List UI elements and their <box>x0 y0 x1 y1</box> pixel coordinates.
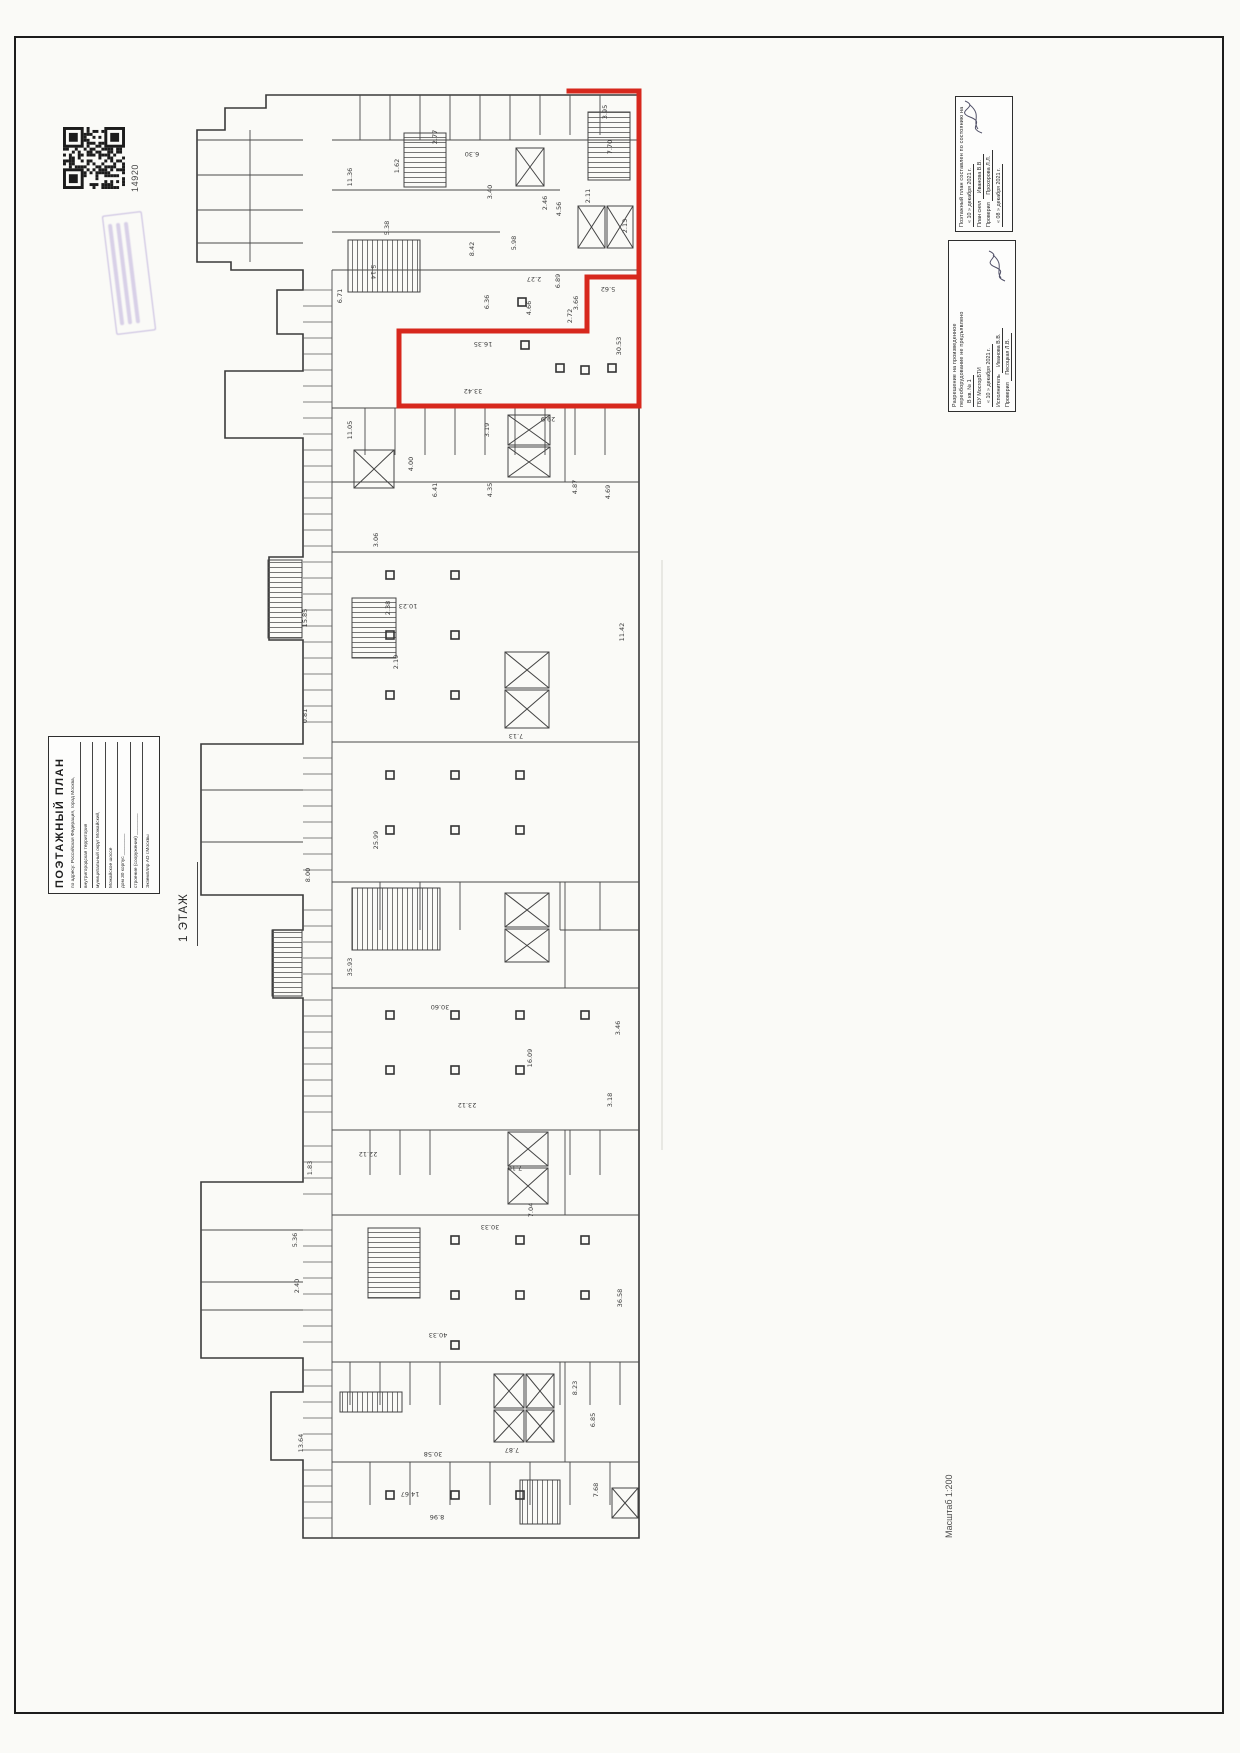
address-row: муниципальный округ Можайский, <box>93 742 106 888</box>
elevator-shaft <box>516 148 544 186</box>
copy-row: Экземпляр АО г.Москвы <box>143 742 155 888</box>
qr-module <box>93 154 96 157</box>
column <box>451 631 459 639</box>
qr-module <box>69 165 72 168</box>
dim-label: 2.19 <box>392 655 400 669</box>
elevator-shaft <box>526 1374 554 1408</box>
dim-label: 7.10 <box>508 1164 522 1172</box>
qr-module <box>116 148 119 151</box>
dim-label: 2.77 <box>431 130 439 144</box>
dim-label: 16.35 <box>474 340 493 348</box>
dim-label: 2.11 <box>584 189 592 203</box>
qr-module <box>87 168 90 171</box>
dim-label: 7.70 <box>606 140 614 154</box>
qr-module <box>122 183 125 186</box>
qr-module <box>104 183 107 186</box>
floor-label-wrap: 1 ЭТАЖ <box>178 862 202 946</box>
qr-module <box>66 148 69 151</box>
qr-module <box>104 171 107 174</box>
elevator-shaft <box>505 690 549 728</box>
qr-module <box>81 159 84 162</box>
checker-label: Проверил <box>986 202 992 227</box>
qr-module <box>116 186 119 189</box>
dim-label: 1.83 <box>306 1161 314 1175</box>
qr-module <box>122 177 125 180</box>
qr-module <box>87 130 90 133</box>
qr-module <box>90 183 93 186</box>
qr-module <box>113 162 116 165</box>
title-block: ПОЭТАЖНЫЙ ПЛАН по адресу: Российская Фед… <box>48 736 160 894</box>
dim-label: 35.93 <box>346 958 354 977</box>
document-title: ПОЭТАЖНЫЙ ПЛАН <box>53 742 68 888</box>
dim-label: 30.53 <box>615 337 623 356</box>
qr-module <box>90 148 93 151</box>
qr-module <box>98 136 101 139</box>
address-row: Можайское шоссе <box>106 742 119 888</box>
qr-module <box>104 180 107 183</box>
column <box>516 1236 524 1244</box>
dim-label: 2.27 <box>527 275 541 283</box>
dim-label: 8.23 <box>571 1381 579 1395</box>
floor-label: 1 ЭТАЖ <box>178 862 198 946</box>
qr-module <box>95 174 98 177</box>
dim-label: 5.36 <box>291 1233 299 1247</box>
qr-module <box>113 154 116 157</box>
dim-label: 15.85 <box>301 609 309 628</box>
dim-label: 16.09 <box>526 1049 534 1068</box>
qr-module <box>84 165 87 168</box>
qr-module <box>69 159 72 162</box>
dim-label: 1.62 <box>393 159 401 173</box>
qr-module <box>104 174 107 177</box>
column <box>451 1291 459 1299</box>
qr-finder <box>69 133 78 142</box>
executor-name: Иванова В.В. <box>996 328 1003 373</box>
column <box>451 691 459 699</box>
dim-label: 4.66 <box>525 301 533 315</box>
qr-module <box>122 180 125 183</box>
dim-label: 29.9 <box>541 415 555 423</box>
qr-module <box>72 157 75 160</box>
column <box>386 691 394 699</box>
dim-label: 2.40 <box>293 1279 301 1293</box>
staircase <box>348 240 420 292</box>
qr-module <box>113 165 116 168</box>
qr-module <box>122 171 125 174</box>
qr-module <box>107 154 110 157</box>
permit-block: Разрешение на произведенное переоборудов… <box>948 240 1016 412</box>
column <box>386 1011 394 1019</box>
qr-module <box>98 168 101 171</box>
qr-module <box>93 136 96 139</box>
staircase <box>352 888 440 950</box>
column <box>451 1341 459 1349</box>
qr-module <box>84 139 87 142</box>
staircase <box>404 133 446 187</box>
qr-module <box>110 180 113 183</box>
qr-finder <box>69 174 78 183</box>
column <box>451 1491 459 1499</box>
survey-block-wrap: Поэтажный план составлен по состоянию на… <box>955 96 1013 232</box>
address-row: по адресу: Российская Федерация, город М… <box>68 742 81 888</box>
barcode-number-wrap: 14920 <box>130 130 144 192</box>
column <box>451 1066 459 1074</box>
dim-label: 4.35 <box>486 483 494 497</box>
elevator-shaft <box>508 1168 548 1204</box>
staircase <box>368 1228 420 1298</box>
qr-module <box>72 151 75 154</box>
elevator-shaft <box>505 929 549 962</box>
elevator-shaft <box>578 206 605 248</box>
qr-module <box>101 186 104 189</box>
surveyor-name: Иванова В.В. <box>977 154 984 199</box>
staircase <box>268 560 302 638</box>
qr-module <box>101 142 104 145</box>
qr-module <box>90 171 93 174</box>
dim-label: 2.13 <box>621 219 629 233</box>
qr-module <box>104 154 107 157</box>
column <box>608 364 616 372</box>
dim-label: 3.06 <box>372 533 380 547</box>
qr-module <box>116 174 119 177</box>
building-row: строение (сооружение) ________ <box>131 742 144 888</box>
qr-module <box>72 159 75 162</box>
qr-module <box>98 142 101 145</box>
dim-label: 2.38 <box>384 601 392 615</box>
column <box>581 1236 589 1244</box>
qr-module <box>113 186 116 189</box>
qr-module <box>69 154 72 157</box>
qr-module <box>87 133 90 136</box>
dim-label: 3.46 <box>614 1021 622 1035</box>
column <box>516 771 524 779</box>
dim-label: 3.95 <box>601 105 609 119</box>
qr-module <box>104 186 107 189</box>
permit-line-3: В кв. № 1 <box>967 375 974 407</box>
qr-module <box>95 177 98 180</box>
surveyor-label: План снял <box>977 201 983 227</box>
column <box>386 571 394 579</box>
dim-label: 36.58 <box>616 1289 624 1308</box>
dim-label: 4.87 <box>571 480 579 494</box>
qr-module <box>119 159 122 162</box>
qr-module <box>107 171 110 174</box>
qr-module <box>110 159 113 162</box>
elevator-shaft <box>526 1410 554 1442</box>
dim-label: 2.46 <box>541 196 549 210</box>
qr-module <box>87 151 90 154</box>
dim-label: 5.62 <box>601 285 615 293</box>
elevator-shaft <box>607 206 633 248</box>
column <box>581 366 589 374</box>
qr-module <box>98 157 101 160</box>
scale-label-wrap: Масштаб 1:200 <box>944 1452 962 1538</box>
qr-module <box>84 133 87 136</box>
qr-module <box>107 157 110 160</box>
qr-module <box>122 165 125 168</box>
qr-module <box>101 130 104 133</box>
qr-module <box>84 171 87 174</box>
elevator-shaft <box>494 1374 524 1408</box>
qr-module <box>78 165 81 168</box>
dim-label: 22.12 <box>359 1150 378 1158</box>
elevator-shaft <box>612 1488 638 1518</box>
executor-label: Исполнитель <box>996 374 1002 407</box>
qr-module <box>104 159 107 162</box>
dim-label: 30.33 <box>481 1223 500 1231</box>
qr-module <box>63 162 66 165</box>
column <box>556 364 564 372</box>
qr-module <box>93 186 96 189</box>
qr-module <box>107 186 110 189</box>
qr-module <box>107 174 110 177</box>
staircases <box>268 112 630 1524</box>
dim-label: 14.67 <box>401 1490 420 1498</box>
column <box>451 571 459 579</box>
dim-label: 11.05 <box>346 421 354 440</box>
qr-module <box>87 162 90 165</box>
qr-module <box>113 174 116 177</box>
dim-label: 6.71 <box>336 289 344 303</box>
dim-label: 8.42 <box>468 242 476 256</box>
dim-label: 5.14 <box>369 265 377 279</box>
permit-line-2: переоборудование не предъявлено <box>959 245 966 407</box>
qr-module <box>101 148 104 151</box>
permit-checker-label: Проверил <box>1005 382 1011 407</box>
qr-module <box>90 133 93 136</box>
qr-module <box>81 165 84 168</box>
qr-module <box>110 174 113 177</box>
qr-module <box>101 154 104 157</box>
elevator-shaft <box>505 652 549 688</box>
qr-module <box>90 154 93 157</box>
qr-module <box>98 171 101 174</box>
column <box>386 826 394 834</box>
qr-module <box>110 183 113 186</box>
dim-label: 3.19 <box>483 423 491 437</box>
column <box>516 1011 524 1019</box>
qr-module <box>122 162 125 165</box>
title-block-wrap: ПОЭТАЖНЫЙ ПЛАН по адресу: Российская Фед… <box>48 736 160 894</box>
qr-module <box>78 151 81 154</box>
house-row: дом 30 корпус ________ <box>118 742 131 888</box>
qr-module <box>98 151 101 154</box>
qr-module <box>78 157 81 160</box>
qr-module <box>63 148 66 151</box>
qr-module <box>116 168 119 171</box>
qr-module <box>122 168 125 171</box>
dim-label: 6.89 <box>554 274 562 288</box>
scan-crease <box>661 560 663 1150</box>
qr-module <box>107 183 110 186</box>
qr-module <box>119 168 122 171</box>
column <box>386 1066 394 1074</box>
qr-module <box>110 168 113 171</box>
dim-label: 33.42 <box>464 387 483 395</box>
qr-module <box>69 157 72 160</box>
qr-module <box>93 148 96 151</box>
survey-block: Поэтажный план составлен по состоянию на… <box>955 96 1013 232</box>
qr-module <box>87 139 90 142</box>
dim-label: 7.68 <box>592 1483 600 1497</box>
address-row: внутригородская территория <box>81 742 94 888</box>
qr-module <box>98 145 101 148</box>
dim-label: 3.18 <box>606 1093 614 1107</box>
permit-date: « 10 » декабря 2021 г. <box>986 344 993 407</box>
dim-label: 23.12 <box>458 1101 477 1109</box>
qr-module <box>84 174 87 177</box>
dim-label: 6.41 <box>431 483 439 497</box>
column <box>581 1011 589 1019</box>
qr-module <box>78 154 81 157</box>
dim-label: 7.87 <box>505 1446 519 1454</box>
dim-label: 13.64 <box>297 1434 305 1453</box>
column <box>451 771 459 779</box>
stamp <box>102 211 156 335</box>
qr-module <box>81 154 84 157</box>
qr-module <box>95 130 98 133</box>
dim-label: 3.66 <box>572 296 580 310</box>
dim-label: 30.58 <box>424 1450 443 1458</box>
permit-org: ГБУ МосгорБТИ <box>976 245 986 407</box>
scale-label: Масштаб 1:200 <box>944 1452 958 1538</box>
qr-module <box>93 183 96 186</box>
dim-label: 7.13 <box>509 732 523 740</box>
partition-ticks <box>303 290 332 1518</box>
qr-module <box>63 159 66 162</box>
qr-module <box>110 165 113 168</box>
survey-date: « 10 » декабря 2021 г. <box>967 164 974 227</box>
qr-module <box>75 165 78 168</box>
dim-label: 4.56 <box>555 202 563 216</box>
qr-module <box>93 162 96 165</box>
staircase <box>340 1392 402 1412</box>
qr-module <box>107 148 110 151</box>
dim-label: 6.36 <box>483 295 491 309</box>
dim-label: 5.38 <box>383 221 391 235</box>
qr-module <box>98 154 101 157</box>
qr-module <box>95 165 98 168</box>
checker-name: Прохорова Л.Л. <box>986 150 993 201</box>
staircase <box>272 930 302 996</box>
qr-module <box>87 127 90 130</box>
floor-plan-drawing: 3.957.702.132.114.562.463.406.302.7711.3… <box>190 80 650 1550</box>
qr-module <box>63 154 66 157</box>
dim-label: 6.85 <box>589 1413 597 1427</box>
qr-module <box>87 159 90 162</box>
dim-label: 8.00 <box>304 868 312 882</box>
permit-line-1: Разрешение на произведенное <box>952 245 959 407</box>
qr-module <box>75 148 78 151</box>
dim-label: 0.81 <box>301 709 309 723</box>
qr-module <box>95 183 98 186</box>
column <box>451 1236 459 1244</box>
dim-label: 10.23 <box>399 602 418 610</box>
qr-module <box>104 168 107 171</box>
qr-module <box>116 151 119 154</box>
column <box>521 341 529 349</box>
qr-module <box>101 168 104 171</box>
permit-checker-name: Песоцкая Л.В. <box>1005 333 1012 381</box>
dimension-labels: 3.957.702.132.114.562.463.406.302.7711.3… <box>291 105 629 1521</box>
qr-module <box>110 186 113 189</box>
qr-module <box>84 136 87 139</box>
left-room-partitions <box>303 290 332 1518</box>
permit-block-wrap: Разрешение на произведенное переоборудов… <box>948 240 1016 412</box>
qr-module <box>87 145 90 148</box>
qr-module <box>95 151 98 154</box>
qr-module <box>107 165 110 168</box>
elevator-shaft <box>505 893 549 927</box>
qr-module <box>119 148 122 151</box>
qr-module <box>90 151 93 154</box>
qr-module <box>84 148 87 151</box>
qr-module <box>87 154 90 157</box>
dim-label: 25.99 <box>372 831 380 850</box>
survey-header: Поэтажный план составлен по состоянию на <box>959 101 966 227</box>
qr-module <box>101 183 104 186</box>
column <box>516 826 524 834</box>
dim-label: 4.69 <box>604 485 612 499</box>
elevator-shaft <box>508 1132 548 1166</box>
qr-module <box>110 157 113 160</box>
qr-module <box>110 151 113 154</box>
dim-label: 4.00 <box>407 457 415 471</box>
scanned-floorplan-sheet: 14920 3.957.702.132.114.562.463.4 <box>0 0 1240 1753</box>
qr-module <box>95 145 98 148</box>
dim-label: 3.40 <box>486 185 494 199</box>
qr-module <box>66 159 69 162</box>
qr-module <box>116 180 119 183</box>
elevator-shaft <box>494 1410 524 1442</box>
barcode-number: 14920 <box>130 130 144 192</box>
qr-module <box>93 142 96 145</box>
qr-module <box>110 148 113 151</box>
qr-code <box>63 127 125 189</box>
qr-module <box>116 159 119 162</box>
qr-module <box>90 142 93 145</box>
qr-module <box>93 168 96 171</box>
column <box>386 771 394 779</box>
qr-module <box>98 165 101 168</box>
qr-module <box>107 151 110 154</box>
staircase <box>520 1480 560 1524</box>
qr-module <box>122 157 125 160</box>
column <box>451 826 459 834</box>
qr-module <box>93 130 96 133</box>
column <box>581 1291 589 1299</box>
dim-label: 7.04 <box>527 1203 535 1217</box>
column <box>516 1066 524 1074</box>
dim-label: 11.36 <box>346 168 354 187</box>
elevator-shaft <box>508 447 550 477</box>
qr-module <box>104 165 107 168</box>
column <box>516 1291 524 1299</box>
dim-label: 40.33 <box>429 1331 448 1339</box>
dim-label: 6.30 <box>465 150 479 158</box>
dim-label: 11.42 <box>618 623 626 642</box>
qr-module <box>72 162 75 165</box>
column <box>451 1011 459 1019</box>
qr-module <box>101 162 104 165</box>
dim-label: 30.60 <box>431 1003 450 1011</box>
qr-module <box>95 171 98 174</box>
qr-module <box>119 151 122 154</box>
qr-module <box>101 171 104 174</box>
dim-label: 8.96 <box>430 1513 444 1521</box>
dim-label: 5.98 <box>510 236 518 250</box>
qr-module <box>104 148 107 151</box>
